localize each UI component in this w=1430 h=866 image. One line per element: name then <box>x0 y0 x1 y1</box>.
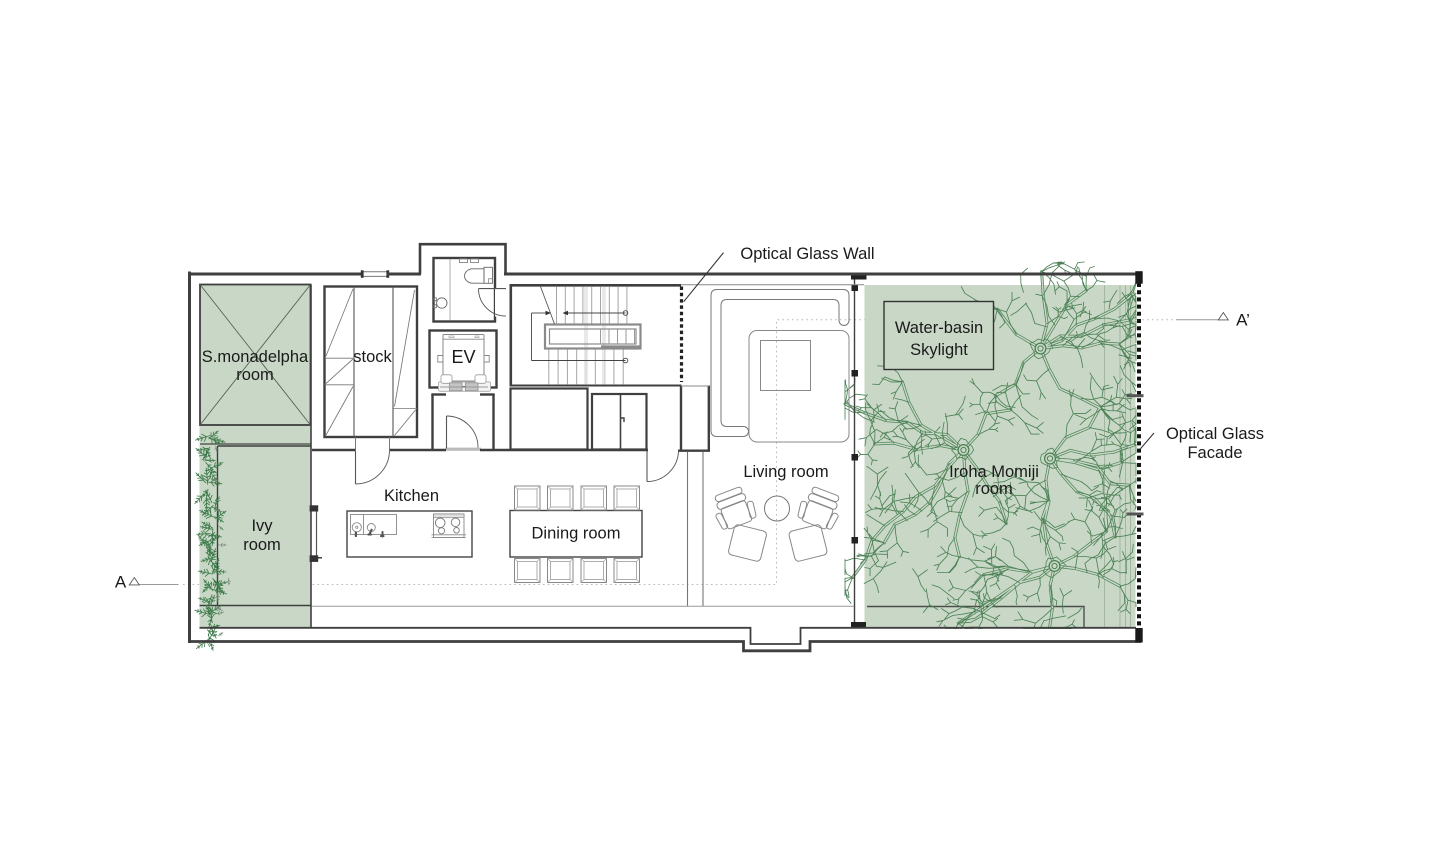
svg-text:S.monadelpha: S.monadelpha <box>202 348 309 366</box>
svg-text:Water-basin: Water-basin <box>895 319 983 337</box>
svg-text:Kitchen: Kitchen <box>384 487 439 505</box>
svg-text:A’: A’ <box>1236 311 1250 330</box>
svg-text:A: A <box>115 573 127 592</box>
svg-text:Ivy: Ivy <box>251 517 273 535</box>
svg-text:room: room <box>236 366 274 384</box>
svg-text:Optical Glass: Optical Glass <box>1166 425 1264 443</box>
svg-text:Dining room: Dining room <box>532 525 621 543</box>
svg-text:Iroha Momiji: Iroha Momiji <box>949 463 1039 481</box>
svg-text:Facade: Facade <box>1187 444 1242 462</box>
svg-text:Living room: Living room <box>743 463 828 481</box>
svg-text:room: room <box>243 536 281 554</box>
svg-text:room: room <box>975 480 1013 498</box>
svg-text:Skylight: Skylight <box>910 341 968 359</box>
svg-text:Optical Glass Wall: Optical Glass Wall <box>740 245 874 263</box>
svg-text:stock: stock <box>353 348 392 366</box>
svg-text:EV: EV <box>451 347 475 367</box>
